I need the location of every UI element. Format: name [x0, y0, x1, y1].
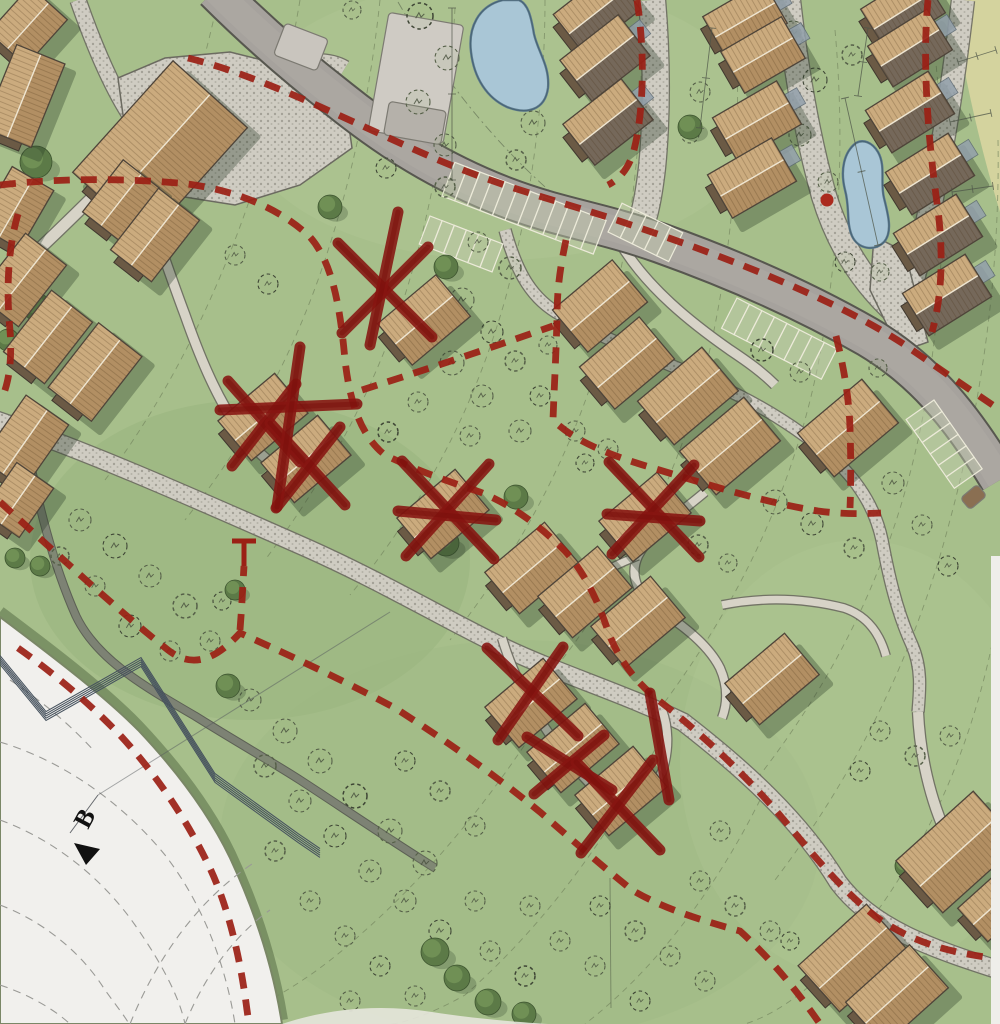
tree-outline	[468, 232, 488, 252]
tree-outline	[324, 825, 346, 847]
tree-outline	[407, 3, 433, 29]
tree-outline	[719, 554, 737, 572]
tree-outline	[842, 45, 862, 65]
tree-outline	[254, 755, 276, 777]
tree-outline	[103, 534, 127, 558]
tree-outline	[378, 422, 398, 442]
tree-outline	[869, 359, 887, 377]
tree-outline	[394, 890, 416, 912]
tree-outline	[844, 538, 864, 558]
tree-outline	[335, 926, 355, 946]
tree-outline	[465, 891, 485, 911]
tree-outline	[521, 111, 545, 135]
tree-outline	[405, 986, 425, 1006]
tree-outline	[434, 134, 456, 156]
tree-outline	[690, 82, 710, 102]
tree-outline	[376, 158, 396, 178]
tree-outline	[370, 956, 390, 976]
tree-outline	[751, 339, 773, 361]
tree-outline	[835, 252, 855, 272]
tree-outline	[660, 946, 680, 966]
tree-outline	[590, 896, 610, 916]
tree-outline	[630, 991, 650, 1011]
tree-outline	[378, 819, 402, 843]
tree-outline	[480, 941, 500, 961]
tree-outline	[912, 515, 932, 535]
tree-outline	[258, 274, 278, 294]
site-plan-canvas: B	[0, 0, 1000, 1024]
tree-highlight	[226, 581, 239, 594]
red-dot-marker	[821, 194, 834, 207]
tree-outline	[870, 721, 890, 741]
tree-outline	[471, 385, 493, 407]
tree-outline	[499, 257, 521, 279]
boundary-dashed-line	[240, 566, 244, 630]
tree-outline	[173, 594, 197, 618]
tree-outline	[406, 90, 430, 114]
tree-outline	[695, 971, 715, 991]
tree-highlight	[506, 486, 522, 502]
tree-outline	[308, 749, 332, 773]
tree-highlight	[6, 549, 19, 562]
tree-outline	[576, 454, 594, 472]
site-plan-figure: B	[0, 0, 1000, 1024]
tree-outline	[710, 821, 730, 841]
tree-highlight	[31, 557, 44, 570]
tree-outline	[69, 509, 91, 531]
tree-outline	[882, 472, 904, 494]
tree-outline	[395, 751, 415, 771]
tree-outline	[343, 784, 367, 808]
tree-outline	[515, 966, 535, 986]
tree-outline	[273, 719, 297, 743]
tree-highlight	[423, 939, 441, 957]
tree-outline	[225, 245, 245, 265]
tree-outline	[725, 896, 745, 916]
tree-outline	[289, 790, 311, 812]
tree-outline	[905, 746, 925, 766]
tree-outline	[781, 932, 799, 950]
tree-outline	[506, 150, 526, 170]
tree-outline	[760, 921, 780, 941]
tree-outline	[550, 931, 570, 951]
tree-outline	[359, 860, 381, 882]
tree-outline	[460, 426, 480, 446]
tree-outline	[585, 956, 605, 976]
tree-outline	[408, 392, 428, 412]
tree-outline	[940, 726, 960, 746]
tree-outline	[818, 172, 838, 192]
tree-highlight	[218, 675, 234, 691]
tree-outline	[465, 816, 485, 836]
tree-highlight	[320, 196, 336, 212]
tree-outline	[690, 871, 710, 891]
tree-highlight	[446, 966, 463, 983]
tree-outline	[871, 263, 889, 281]
tree-outline	[300, 891, 320, 911]
tree-outline	[481, 321, 503, 343]
tree-outline	[340, 991, 360, 1011]
tree-outline	[850, 761, 870, 781]
tree-outline	[938, 556, 958, 576]
tree-outline	[801, 513, 823, 535]
tree-outline	[509, 420, 531, 442]
tree-outline	[430, 781, 450, 801]
tree-outline	[520, 896, 540, 916]
tree-outline	[625, 921, 645, 941]
tree-outline	[530, 386, 550, 406]
tree-highlight	[514, 1003, 530, 1019]
tree-outline	[265, 841, 285, 861]
right-paper-strip	[991, 556, 1000, 1024]
tree-outline	[790, 362, 810, 382]
tree-outline	[413, 851, 437, 875]
tree-outline	[343, 1, 361, 19]
tree-outline	[139, 565, 161, 587]
tree-outline	[505, 351, 525, 371]
tree-highlight	[477, 990, 494, 1007]
tree-highlight	[680, 116, 696, 132]
tree-highlight	[436, 256, 452, 272]
tree-outline	[200, 631, 220, 651]
tree-outline	[435, 46, 459, 70]
